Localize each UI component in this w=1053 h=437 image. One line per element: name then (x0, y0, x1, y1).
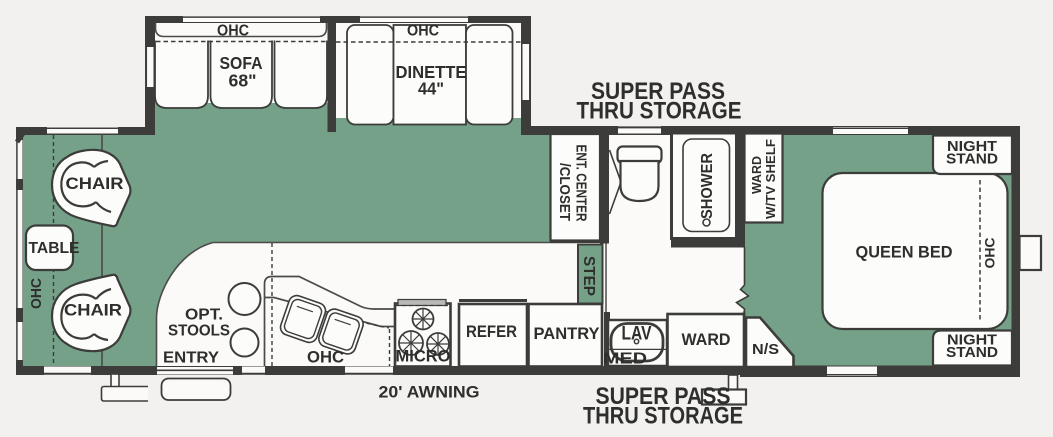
svg-text:STOOLS: STOOLS (168, 323, 230, 340)
svg-text:QUEEN BED: QUEEN BED (856, 243, 953, 262)
svg-text:/CLOSET: /CLOSET (556, 163, 572, 221)
svg-text:OHC: OHC (307, 348, 344, 367)
svg-text:OHC: OHC (983, 237, 998, 268)
svg-text:N/S: N/S (752, 342, 779, 358)
svg-text:CHAIR: CHAIR (64, 301, 122, 320)
svg-text:LAV: LAV (622, 324, 652, 345)
svg-text:WARD: WARD (750, 156, 764, 194)
svg-text:ENTRY: ENTRY (163, 350, 219, 367)
svg-text:TABLE: TABLE (29, 240, 80, 257)
svg-text:W/TV SHELF: W/TV SHELF (764, 139, 778, 219)
svg-text:OHC: OHC (217, 23, 249, 40)
svg-text:44": 44" (418, 79, 444, 99)
svg-text:OHC: OHC (407, 23, 439, 40)
svg-text:PANTRY: PANTRY (534, 324, 601, 343)
svg-text:THRU STORAGE: THRU STORAGE (583, 403, 743, 430)
svg-text:CHAIR: CHAIR (66, 174, 124, 193)
svg-text:MED: MED (603, 351, 647, 368)
svg-text:STAND: STAND (946, 345, 998, 361)
svg-text:68": 68" (229, 71, 257, 91)
svg-text:STEP: STEP (580, 256, 597, 296)
svg-text:THRU STORAGE: THRU STORAGE (577, 98, 742, 125)
svg-text:WARD: WARD (682, 331, 731, 349)
svg-text:MICRO: MICRO (396, 347, 451, 366)
svg-text:STAND: STAND (946, 152, 998, 168)
svg-text:OHC: OHC (28, 278, 45, 309)
svg-text:REFER: REFER (466, 322, 517, 341)
svg-text:ENT. CENTER: ENT. CENTER (573, 145, 589, 222)
svg-text:SHOWER: SHOWER (699, 153, 716, 219)
svg-text:20' AWNING: 20' AWNING (379, 383, 480, 402)
svg-text:OPT.: OPT. (185, 307, 223, 324)
